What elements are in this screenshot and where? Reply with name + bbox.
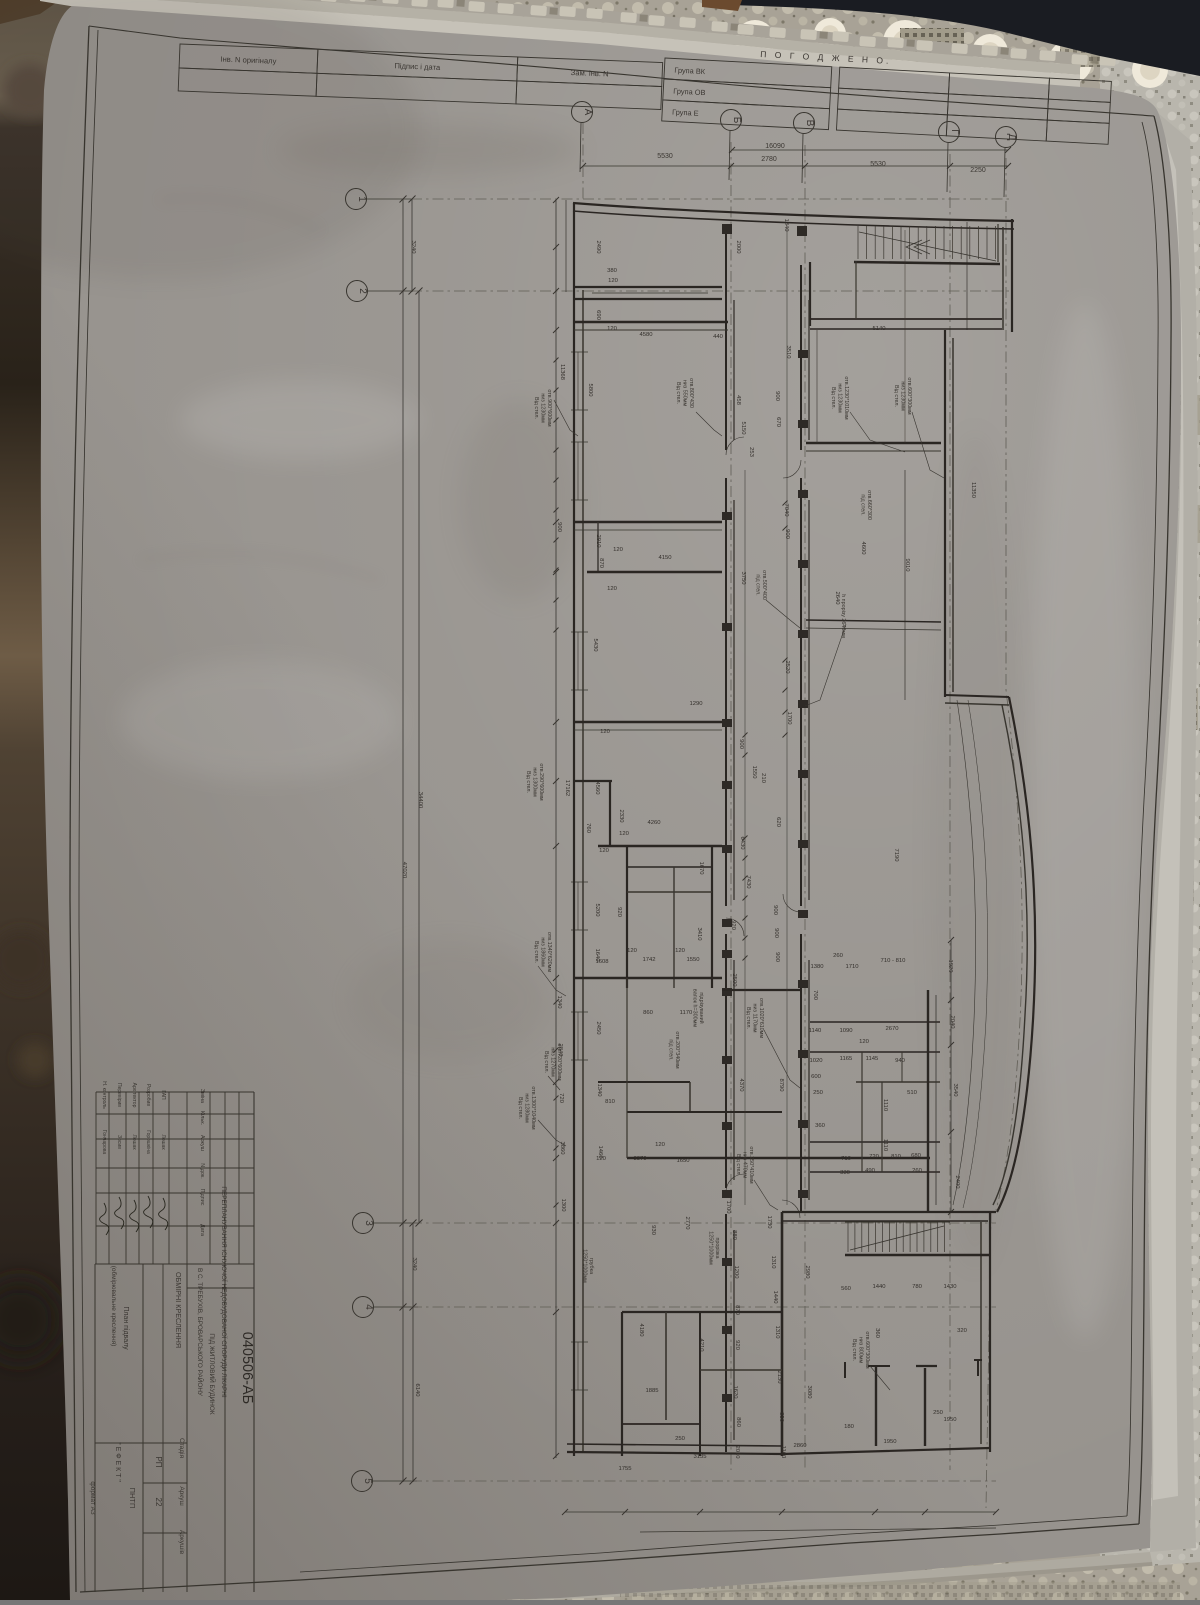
svg-text:отв.500*400: отв.500*400 bbox=[761, 570, 767, 600]
svg-text:5530: 5530 bbox=[657, 153, 673, 160]
svg-text:1: 1 bbox=[356, 196, 367, 202]
svg-text:720: 720 bbox=[869, 1154, 880, 1160]
svg-text:1200: 1200 bbox=[733, 1265, 739, 1279]
svg-text:5530: 5530 bbox=[870, 161, 886, 168]
svg-text:1145: 1145 bbox=[866, 1056, 879, 1062]
svg-text:отв.600*300мм: отв.600*300мм bbox=[906, 377, 912, 415]
svg-text:2910: 2910 bbox=[595, 534, 601, 548]
svg-text:7040: 7040 bbox=[783, 503, 789, 517]
svg-text:900: 900 bbox=[784, 529, 790, 540]
svg-text:120: 120 bbox=[607, 326, 618, 332]
svg-text:Б: Б bbox=[731, 117, 742, 124]
svg-text:120: 120 bbox=[675, 948, 686, 954]
svg-text:2770: 2770 bbox=[684, 1216, 690, 1230]
svg-text:120: 120 bbox=[619, 831, 630, 837]
svg-text:900: 900 bbox=[773, 928, 779, 939]
svg-text:4150: 4150 bbox=[658, 555, 672, 561]
svg-text:3135: 3135 bbox=[693, 1454, 707, 1460]
svg-text:22: 22 bbox=[154, 1498, 163, 1507]
svg-text:870: 870 bbox=[734, 1305, 740, 1316]
svg-text:ОБМІРНІ КРЕСЛЕННЯ: ОБМІРНІ КРЕСЛЕННЯ bbox=[174, 1272, 183, 1348]
svg-text:1885: 1885 bbox=[645, 1388, 659, 1394]
svg-text:120: 120 bbox=[655, 1142, 666, 1148]
svg-text:низ 1230мм: низ 1230мм bbox=[900, 381, 906, 411]
svg-text:6140: 6140 bbox=[414, 1383, 420, 1397]
svg-text:Від стел.: Від стел. bbox=[533, 941, 539, 963]
svg-text:Від стел.: Від стел. bbox=[525, 771, 531, 793]
svg-text:2040: 2040 bbox=[949, 1015, 955, 1029]
svg-text:510: 510 bbox=[907, 1090, 918, 1096]
svg-text:" Е Ф Е К Т ": " Е Ф Е К Т " bbox=[114, 1442, 121, 1482]
svg-text:930: 930 bbox=[650, 1225, 656, 1236]
svg-text:Кільк.: Кільк. bbox=[199, 1111, 205, 1125]
svg-text:під стел.: під стел. bbox=[668, 1039, 674, 1060]
svg-text:250: 250 bbox=[933, 1410, 944, 1416]
svg-text:1090: 1090 bbox=[839, 1028, 853, 1034]
svg-text:11368: 11368 bbox=[559, 364, 565, 381]
svg-text:810: 810 bbox=[891, 1154, 902, 1160]
svg-text:440: 440 bbox=[713, 334, 724, 340]
svg-text:Від стел.: Від стел. bbox=[533, 397, 539, 419]
svg-text:17162: 17162 bbox=[564, 780, 570, 796]
svg-text:низ 1280мм: низ 1280мм bbox=[524, 1093, 530, 1123]
svg-text:710 - 810: 710 - 810 bbox=[881, 958, 907, 964]
svg-text:120: 120 bbox=[596, 1156, 607, 1162]
svg-text:1670: 1670 bbox=[698, 861, 704, 875]
svg-text:360: 360 bbox=[815, 1123, 826, 1129]
svg-text:1950: 1950 bbox=[943, 1417, 957, 1423]
svg-text:Підпис і дата: Підпис і дата bbox=[394, 61, 441, 72]
svg-text:Від стел.: Від стел. bbox=[745, 1007, 751, 1029]
svg-text:низ 1230мм: низ 1230мм bbox=[837, 383, 843, 413]
svg-text:6430: 6430 bbox=[739, 836, 745, 850]
svg-text:920: 920 bbox=[730, 920, 736, 931]
svg-text:Аркуш: Аркуш bbox=[199, 1135, 205, 1151]
svg-text:250: 250 bbox=[675, 1436, 686, 1442]
svg-text:2670: 2670 bbox=[885, 1026, 899, 1032]
svg-text:120: 120 bbox=[600, 729, 611, 735]
svg-text:Розробив: Розробив bbox=[145, 1084, 151, 1106]
svg-text:отв.600*300мм: отв.600*300мм bbox=[864, 1331, 870, 1369]
svg-text:1742: 1742 bbox=[642, 957, 655, 963]
svg-text:920: 920 bbox=[616, 907, 622, 918]
svg-text:2010: 2010 bbox=[734, 1445, 740, 1459]
svg-text:5: 5 bbox=[362, 1478, 373, 1484]
svg-text:490: 490 bbox=[865, 1168, 876, 1174]
svg-text:низ 1300мм: низ 1300мм bbox=[532, 767, 538, 797]
svg-text:3410: 3410 bbox=[696, 927, 702, 941]
svg-text:Горошкіна: Горошкіна bbox=[145, 1130, 151, 1154]
svg-text:620: 620 bbox=[775, 817, 781, 828]
svg-text:1620: 1620 bbox=[732, 1385, 738, 1399]
svg-text:1170: 1170 bbox=[680, 1010, 693, 1016]
svg-text:1110: 1110 bbox=[882, 1139, 888, 1152]
svg-text:780: 780 bbox=[912, 1284, 923, 1290]
svg-text:Від стел.: Від стел. bbox=[735, 1154, 741, 1176]
svg-text:860: 860 bbox=[643, 1010, 654, 1016]
svg-text:8790: 8790 bbox=[778, 1078, 784, 1092]
svg-text:2520: 2520 bbox=[784, 660, 790, 674]
svg-text:4600: 4600 bbox=[860, 541, 866, 555]
svg-text:ПЕРЕПЛАНУВАННЯ ІСНУЮЧОЇ НЕДОБУ: ПЕРЕПЛАНУВАННЯ ІСНУЮЧОЇ НЕДОБУДОВАНОЇ СП… bbox=[220, 1186, 228, 1397]
svg-text:1550: 1550 bbox=[686, 957, 700, 963]
svg-text:отв.1020*610мм: отв.1020*610мм bbox=[758, 998, 764, 1038]
svg-text:120: 120 bbox=[599, 848, 610, 854]
svg-text:РП: РП bbox=[154, 1456, 163, 1467]
svg-text:1250*1000мм: 1250*1000мм bbox=[582, 1249, 588, 1283]
svg-text:9010: 9010 bbox=[904, 558, 910, 572]
svg-text:3510: 3510 bbox=[785, 345, 791, 359]
svg-text:16090: 16090 bbox=[765, 143, 785, 150]
svg-text:5150: 5150 bbox=[740, 421, 746, 435]
svg-text:формат А3: формат А3 bbox=[89, 1481, 96, 1515]
svg-text:Група ВК: Група ВК bbox=[674, 66, 706, 77]
svg-text:отв.290*600мм: отв.290*600мм bbox=[538, 763, 544, 801]
svg-text:низ 470мм: низ 470мм bbox=[742, 1152, 748, 1179]
svg-text:Зам. інв. N: Зам. інв. N bbox=[571, 68, 609, 78]
svg-text:грубка: грубка bbox=[588, 1258, 594, 1274]
svg-text:690: 690 bbox=[595, 310, 601, 321]
svg-text:В С. ТРЕБУХІВ, БРОВАРСЬКОГО РА: В С. ТРЕБУХІВ, БРОВАРСЬКОГО РАЙОНУ bbox=[196, 1268, 205, 1397]
svg-text:Від стел.: Від стел. bbox=[543, 1051, 549, 1073]
svg-text:1340: 1340 bbox=[783, 218, 789, 232]
svg-text:1310: 1310 bbox=[770, 1255, 776, 1269]
svg-text:1550: 1550 bbox=[751, 765, 757, 779]
svg-text:1300: 1300 bbox=[560, 1198, 566, 1212]
svg-text:1380: 1380 bbox=[810, 964, 824, 970]
svg-text:Група ОВ: Група ОВ bbox=[673, 86, 706, 97]
svg-text:320: 320 bbox=[957, 1328, 968, 1334]
svg-text:1340: 1340 bbox=[556, 995, 562, 1009]
svg-text:253: 253 bbox=[748, 447, 754, 458]
svg-text:3240: 3240 bbox=[410, 240, 416, 254]
svg-text:Від стел.: Від стел. bbox=[851, 1339, 857, 1361]
svg-text:низ 800мм: низ 800мм bbox=[858, 1337, 864, 1364]
svg-text:120: 120 bbox=[613, 547, 624, 553]
svg-text:120: 120 bbox=[608, 278, 619, 284]
svg-text:1310: 1310 bbox=[774, 1325, 780, 1339]
svg-text:низ 1170мм: низ 1170мм bbox=[752, 1004, 758, 1033]
svg-text:670: 670 bbox=[775, 417, 781, 428]
svg-text:2: 2 bbox=[357, 288, 368, 294]
svg-text:180: 180 bbox=[844, 1424, 855, 1430]
svg-text:прорізка: прорізка bbox=[714, 1237, 720, 1258]
svg-text:отв.720*600мм: отв.720*600мм bbox=[556, 1043, 562, 1081]
svg-text:900: 900 bbox=[738, 739, 744, 750]
svg-text:920: 920 bbox=[734, 1340, 740, 1351]
svg-text:2330: 2330 bbox=[618, 809, 624, 823]
svg-text:Підпис: Підпис bbox=[199, 1189, 205, 1206]
svg-text:120: 120 bbox=[627, 948, 638, 954]
svg-text:380: 380 bbox=[607, 268, 618, 274]
svg-text:Г: Г bbox=[949, 129, 960, 135]
svg-text:під стел.: під стел. bbox=[755, 574, 761, 595]
svg-text:7190: 7190 bbox=[893, 848, 899, 862]
svg-text:підрізуваний: підрізуваний bbox=[698, 992, 705, 1023]
svg-text:отв.250*410мм: отв.250*410мм bbox=[748, 1146, 754, 1184]
svg-text:Перевірив: Перевірив bbox=[116, 1083, 122, 1107]
svg-text:880: 880 bbox=[731, 1230, 737, 1241]
svg-text:Від стел.: Від стел. bbox=[517, 1097, 523, 1119]
svg-text:3750: 3750 bbox=[740, 571, 746, 585]
svg-text:Від стел.: Від стел. bbox=[893, 385, 899, 407]
svg-text:ПНТП: ПНТП bbox=[128, 1488, 137, 1509]
svg-text:870: 870 bbox=[598, 558, 604, 569]
svg-text:отв.1230*1010мм: отв.1230*1010мм bbox=[843, 376, 849, 419]
svg-text:1710: 1710 bbox=[845, 964, 859, 970]
svg-text:отв.1300*1040мм: отв.1300*1040мм bbox=[530, 1086, 536, 1129]
svg-text:210: 210 bbox=[760, 773, 766, 784]
svg-text:560: 560 bbox=[841, 1286, 852, 1292]
svg-text:4560: 4560 bbox=[594, 781, 600, 795]
svg-text:850: 850 bbox=[778, 1412, 784, 1423]
svg-text:900: 900 bbox=[556, 522, 562, 533]
svg-text:Гончарова: Гончарова bbox=[101, 1130, 107, 1154]
svg-text:низ 1230мм: низ 1230мм bbox=[540, 393, 546, 423]
svg-text:1340: 1340 bbox=[596, 1083, 602, 1097]
svg-text:710: 710 bbox=[841, 1156, 852, 1162]
svg-text:під стел.: під стел. bbox=[860, 494, 866, 515]
svg-text:2400: 2400 bbox=[954, 1175, 960, 1189]
svg-text:5430: 5430 bbox=[592, 638, 598, 652]
svg-text:1608: 1608 bbox=[595, 959, 609, 965]
svg-text:h прорізу 2640мм: h прорізу 2640мм bbox=[840, 594, 846, 638]
svg-text:2000: 2000 bbox=[735, 240, 741, 254]
svg-text:Зміна: Зміна bbox=[199, 1089, 205, 1103]
svg-text:4210: 4210 bbox=[698, 1338, 704, 1352]
svg-text:810: 810 bbox=[605, 1099, 616, 1105]
svg-text:2640: 2640 bbox=[834, 591, 840, 605]
svg-text:3370: 3370 bbox=[633, 1156, 647, 1162]
svg-text:1020: 1020 bbox=[809, 1058, 823, 1064]
svg-text:1430: 1430 bbox=[943, 1284, 957, 1290]
svg-text:Лошак: Лошак bbox=[131, 1134, 137, 1150]
svg-text:отв.200*340мм: отв.200*340мм bbox=[674, 1031, 680, 1069]
svg-text:2980: 2980 bbox=[804, 1265, 810, 1279]
svg-text:(обмірювальне креслення): (обмірювальне креслення) bbox=[110, 1266, 118, 1347]
svg-text:Група Е: Група Е bbox=[672, 107, 699, 117]
svg-text:7430: 7430 bbox=[745, 875, 751, 889]
svg-text:4: 4 bbox=[363, 1304, 374, 1310]
svg-text:120: 120 bbox=[859, 1039, 870, 1045]
svg-text:отв.900*600мм: отв.900*600мм bbox=[546, 389, 552, 427]
svg-text:Стадія: Стадія bbox=[178, 1438, 186, 1458]
svg-text:1755: 1755 bbox=[618, 1466, 632, 1472]
svg-text:1160: 1160 bbox=[780, 1446, 786, 1459]
svg-text:040506-АБ: 040506-АБ bbox=[239, 1332, 255, 1404]
svg-text:2490: 2490 bbox=[595, 240, 601, 254]
svg-text:4260: 4260 bbox=[647, 820, 661, 826]
svg-text:760: 760 bbox=[585, 823, 591, 834]
svg-text:Від стел.: Від стел. bbox=[675, 382, 681, 404]
svg-text:1730: 1730 bbox=[766, 1215, 772, 1229]
svg-text:2250: 2250 bbox=[970, 167, 986, 174]
svg-text:Аркуш: Аркуш bbox=[178, 1486, 185, 1505]
svg-text:1920: 1920 bbox=[947, 959, 953, 973]
svg-text:В: В bbox=[804, 120, 815, 127]
svg-text:1440: 1440 bbox=[772, 1290, 778, 1304]
svg-text:5200: 5200 bbox=[594, 903, 600, 917]
svg-text:720: 720 bbox=[558, 1093, 564, 1104]
svg-text:Лошак: Лошак bbox=[160, 1134, 166, 1150]
svg-text:Дата: Дата bbox=[199, 1224, 205, 1236]
svg-text:900: 900 bbox=[774, 391, 780, 402]
svg-text:1950: 1950 bbox=[883, 1439, 897, 1445]
svg-text:Архітектор: Архітектор bbox=[131, 1083, 137, 1108]
svg-text:1290: 1290 bbox=[689, 701, 703, 707]
svg-text:4370: 4370 bbox=[738, 1078, 744, 1092]
svg-text:Зосив: Зосив bbox=[116, 1135, 122, 1149]
svg-text:5140: 5140 bbox=[872, 326, 886, 332]
svg-text:низ 1860мм: низ 1860мм bbox=[540, 937, 546, 967]
svg-text:4580: 4580 bbox=[639, 332, 653, 338]
svg-text:600: 600 bbox=[811, 1074, 822, 1080]
svg-text:940: 940 bbox=[895, 1058, 906, 1064]
svg-text:отв.800*430: отв.800*430 bbox=[688, 378, 694, 408]
svg-text:низ 550мм: низ 550мм bbox=[682, 380, 688, 407]
svg-text:1250*1000мм: 1250*1000мм bbox=[708, 1231, 714, 1265]
svg-text:1110: 1110 bbox=[882, 1099, 888, 1112]
svg-text:120: 120 bbox=[607, 586, 618, 592]
svg-text:34400: 34400 bbox=[417, 792, 423, 809]
svg-text:1700: 1700 bbox=[786, 711, 792, 725]
svg-text:900: 900 bbox=[774, 952, 780, 963]
svg-text:Від стел.: Від стел. bbox=[830, 387, 836, 409]
svg-text:4180: 4180 bbox=[638, 1323, 644, 1337]
svg-text:ПІД ЖИТЛОВИЙ БУДИНОК: ПІД ЖИТЛОВИЙ БУДИНОК bbox=[208, 1333, 217, 1414]
svg-text:вапок h=300мм: вапок h=300мм bbox=[692, 989, 698, 1027]
svg-text:1140: 1140 bbox=[809, 1028, 822, 1034]
svg-text:250: 250 bbox=[813, 1090, 824, 1096]
svg-text:360: 360 bbox=[874, 1328, 880, 1339]
svg-text:47020: 47020 bbox=[401, 862, 407, 879]
svg-text:1650: 1650 bbox=[676, 1158, 690, 1164]
svg-text:2130: 2130 bbox=[776, 1370, 782, 1384]
svg-text:1165: 1165 bbox=[840, 1056, 853, 1062]
svg-text:отв.660*300: отв.660*300 bbox=[866, 490, 872, 520]
svg-text:отв.1340*620мм: отв.1340*620мм bbox=[546, 932, 552, 972]
svg-text:Д: Д bbox=[1006, 134, 1017, 141]
svg-text:700: 700 bbox=[812, 990, 818, 1001]
svg-text:330: 330 bbox=[840, 1170, 851, 1176]
svg-text:низ 1270мм: низ 1270мм bbox=[550, 1047, 556, 1077]
svg-text:1700: 1700 bbox=[725, 1200, 731, 1214]
svg-text:Аркушів: Аркушів bbox=[178, 1530, 186, 1555]
svg-text:2780: 2780 bbox=[761, 156, 777, 163]
svg-text:260: 260 bbox=[912, 1168, 923, 1174]
svg-text:3240: 3240 bbox=[411, 1257, 417, 1271]
svg-text:ГАП: ГАП bbox=[160, 1090, 166, 1100]
svg-text:900: 900 bbox=[772, 905, 778, 916]
svg-text:1440: 1440 bbox=[872, 1284, 886, 1290]
svg-text:3080: 3080 bbox=[806, 1385, 812, 1399]
svg-text:260: 260 bbox=[833, 953, 844, 959]
svg-text:Н. контроль: Н. контроль bbox=[101, 1081, 107, 1109]
svg-text:А: А bbox=[582, 109, 593, 116]
svg-text:860: 860 bbox=[735, 1417, 741, 1428]
svg-text:2860: 2860 bbox=[793, 1443, 807, 1449]
svg-text:N док.: N док. bbox=[199, 1163, 205, 1178]
svg-text:5800: 5800 bbox=[587, 383, 593, 397]
svg-text:3: 3 bbox=[363, 1220, 374, 1226]
svg-text:680: 680 bbox=[911, 1153, 922, 1159]
svg-text:План підвалу: План підвалу bbox=[122, 1306, 130, 1350]
svg-text:2500: 2500 bbox=[731, 973, 737, 987]
svg-text:11350: 11350 bbox=[970, 482, 976, 499]
svg-text:458: 458 bbox=[735, 395, 741, 406]
svg-text:2450: 2450 bbox=[595, 1021, 601, 1035]
svg-text:3540: 3540 bbox=[952, 1083, 958, 1097]
